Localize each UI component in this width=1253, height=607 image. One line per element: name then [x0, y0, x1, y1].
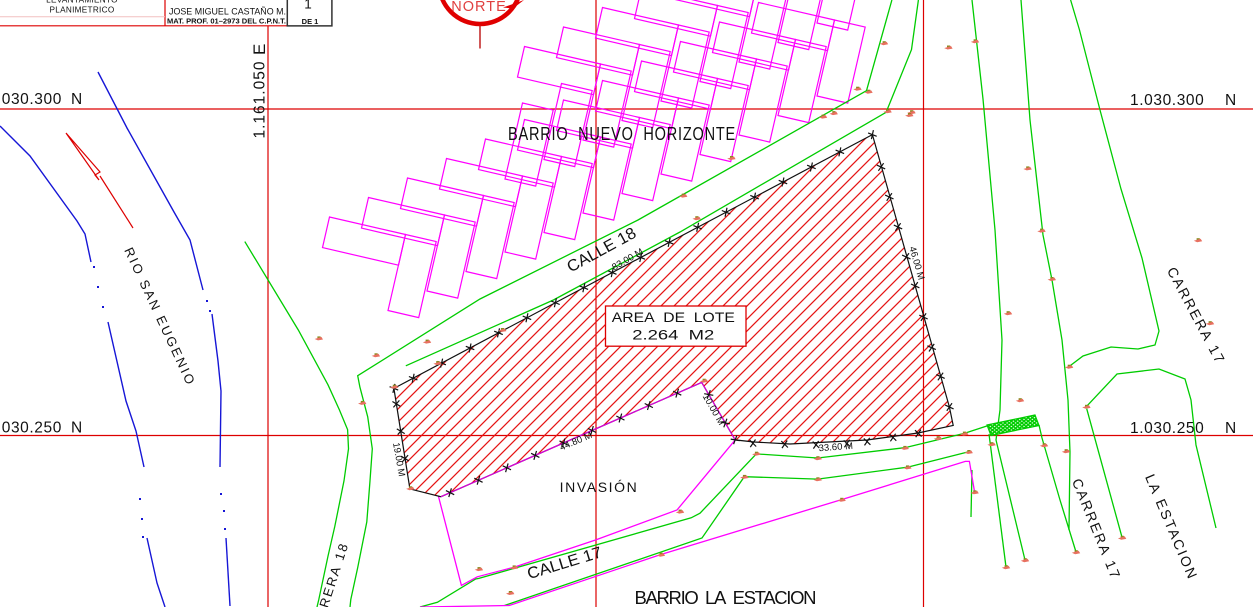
svg-text:2.264 M2: 2.264 M2	[632, 327, 714, 343]
svg-text:INVASIÓN: INVASIÓN	[560, 479, 639, 495]
svg-text:AREA DE LOTE: AREA DE LOTE	[612, 309, 735, 325]
svg-text:N: N	[1225, 420, 1237, 437]
svg-text:LEVANTAMIENTO: LEVANTAMIENTO	[46, 0, 118, 5]
svg-text:BARRIO NUEVO HORIZONTE: BARRIO NUEVO HORIZONTE	[508, 123, 736, 144]
svg-text:MAT. PROF. 01–2973 DEL C.P.N.T: MAT. PROF. 01–2973 DEL C.P.N.T.	[167, 19, 286, 26]
svg-text:BARRIO LA ESTACION: BARRIO LA ESTACION	[635, 587, 818, 607]
svg-text:PLANIMETRICO: PLANIMETRICO	[49, 6, 114, 15]
svg-text:1.030.250: 1.030.250	[0, 420, 62, 437]
svg-text:1.030.300: 1.030.300	[1130, 92, 1204, 109]
svg-text:1: 1	[304, 0, 312, 11]
svg-text:DE 1: DE 1	[302, 17, 319, 26]
svg-text:NORTE: NORTE	[451, 0, 507, 15]
svg-text:N: N	[1225, 92, 1237, 109]
svg-text:N: N	[71, 420, 83, 437]
svg-text:JOSE MIGUEL CASTAÑO M.: JOSE MIGUEL CASTAÑO M.	[169, 7, 286, 17]
svg-text:N: N	[71, 91, 83, 108]
svg-text:1.161.050: 1.161.050	[252, 61, 269, 139]
svg-text:E: E	[250, 43, 269, 55]
svg-text:1.030.300: 1.030.300	[0, 91, 62, 108]
